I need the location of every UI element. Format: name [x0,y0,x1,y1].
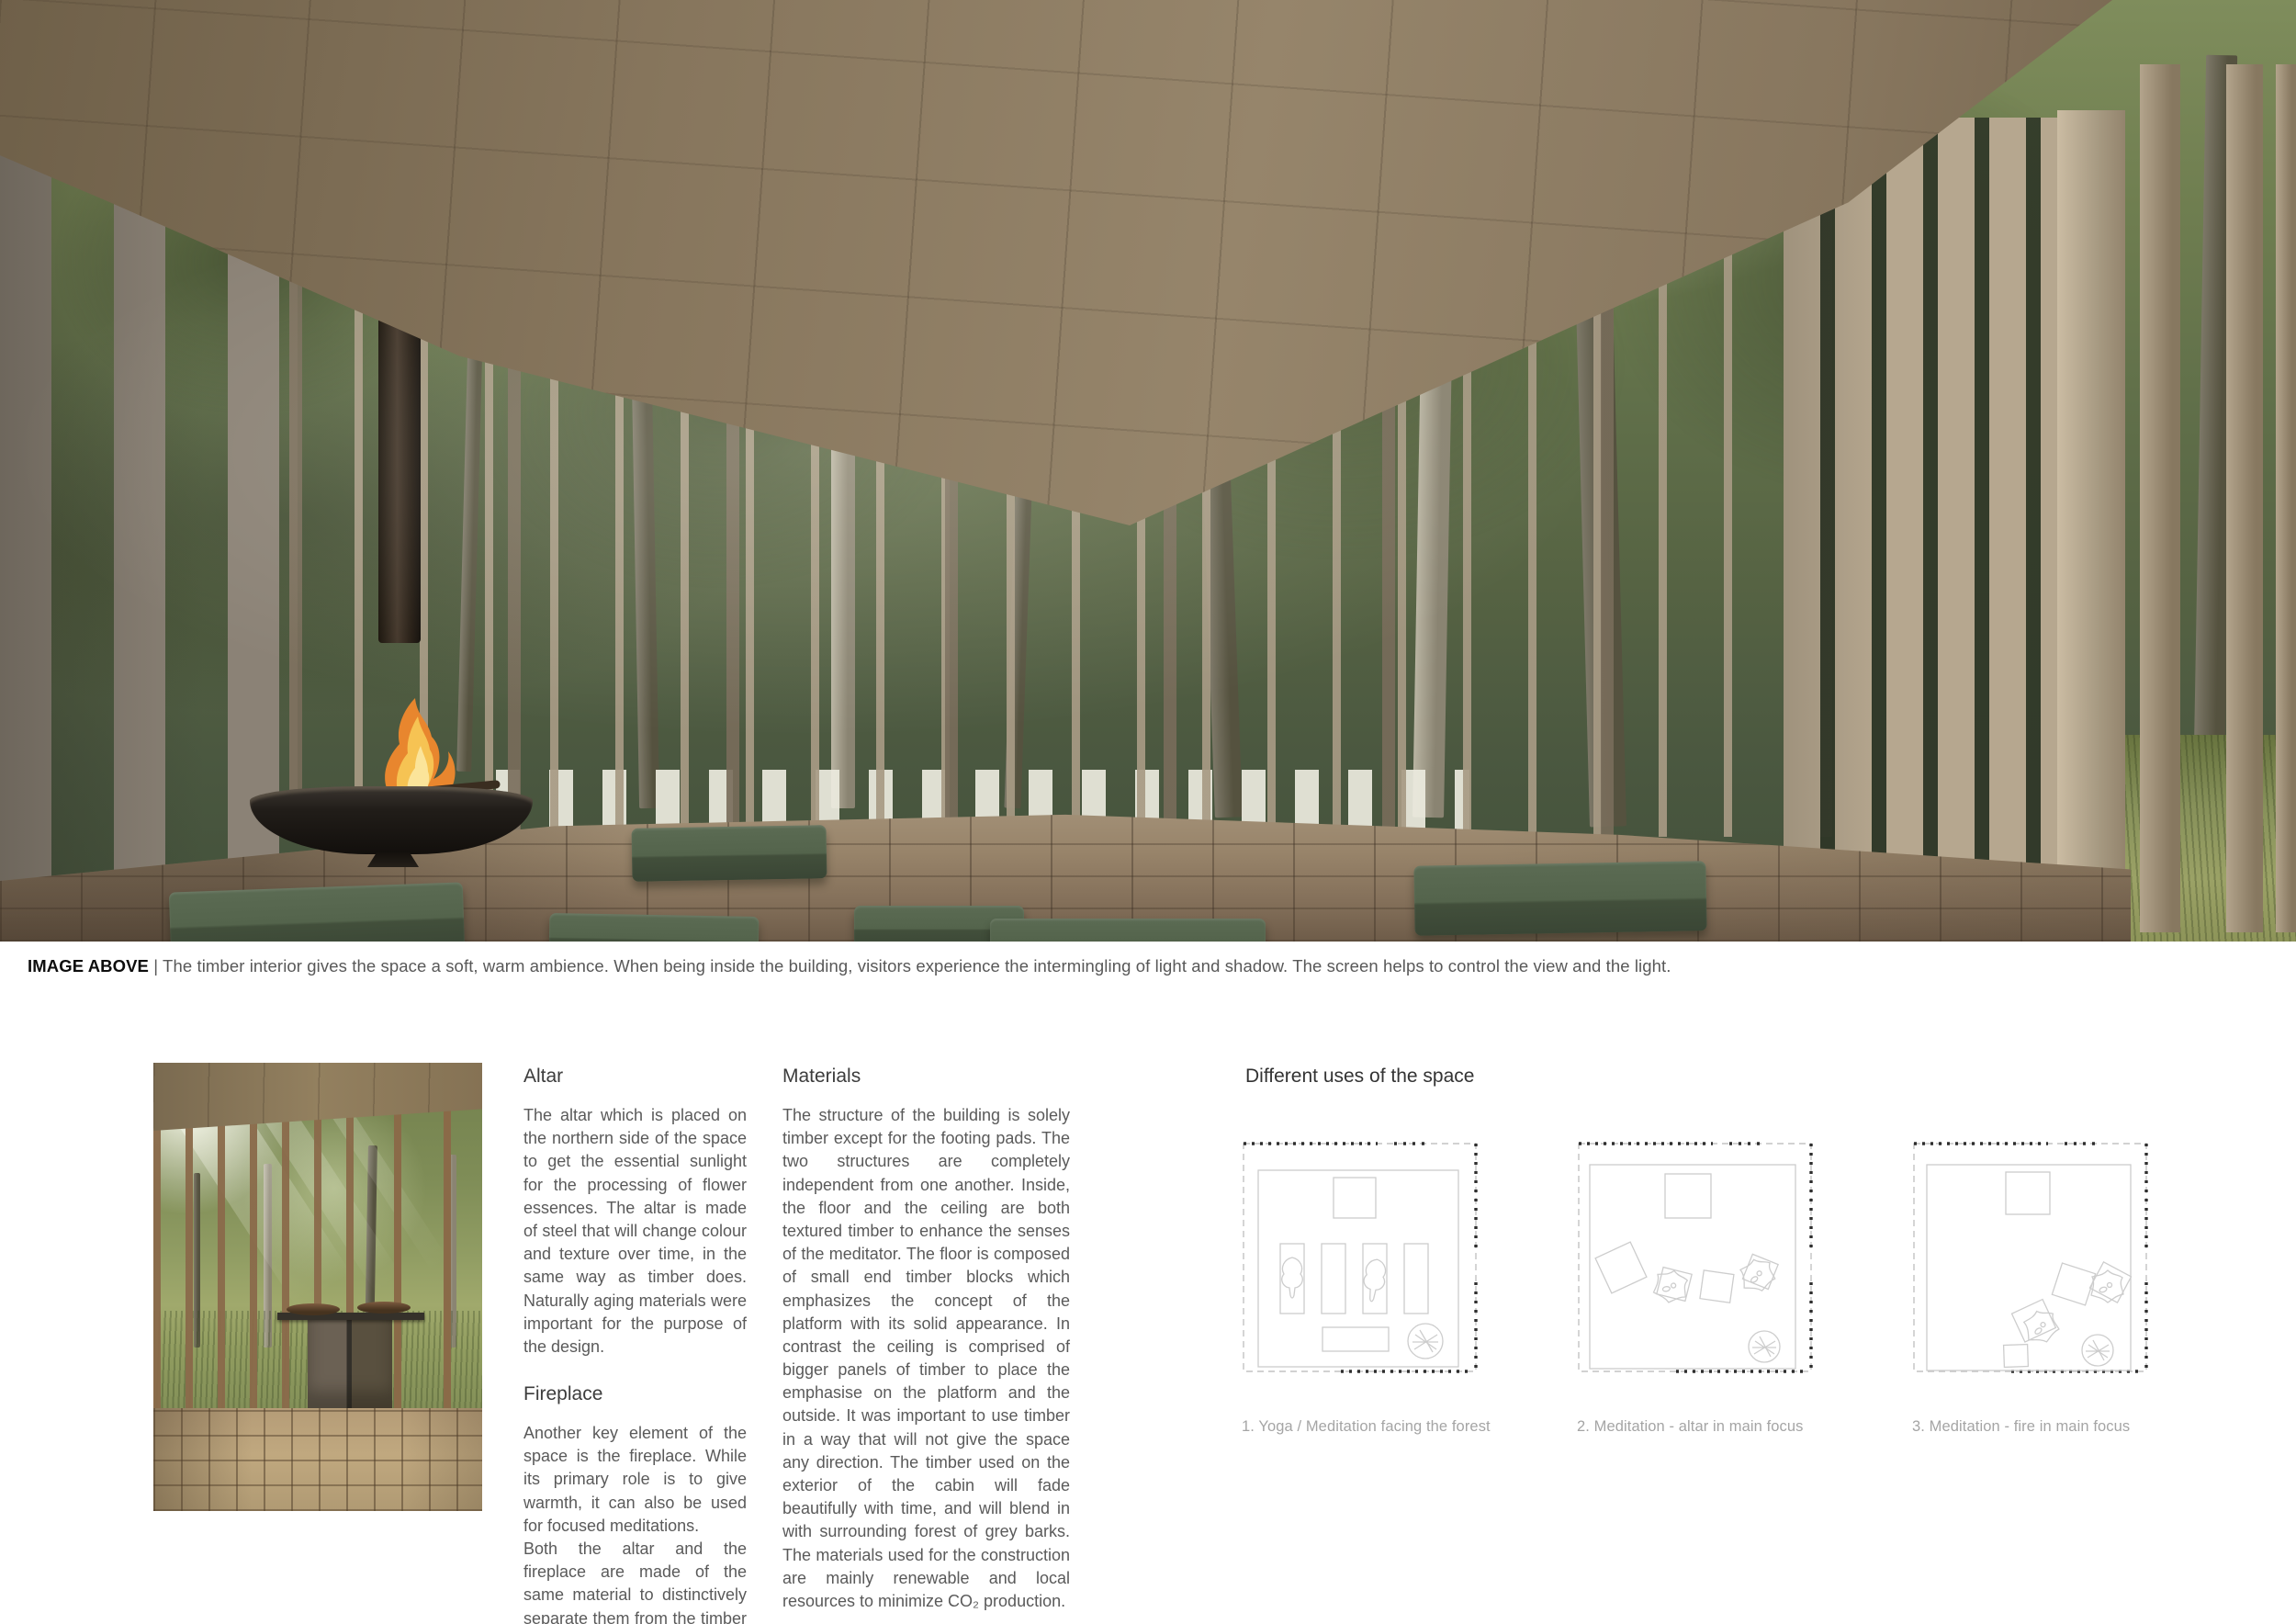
meditation-cushion [549,913,760,942]
diagram-caption-2: 2. Meditation - altar in main focus [1577,1418,1816,1436]
plan-diagram-1 [1242,1137,1480,1378]
meditation-cushion [990,919,1266,942]
materials-body: The structure of the building is solely … [782,1104,1070,1613]
hero-render-image [0,0,2296,942]
caption-label: IMAGE ABOVE [28,956,149,976]
fire-bowl-plan [1408,1324,1443,1359]
exterior-slat-post [2276,64,2296,932]
diagram-meditation-fire: 3. Meditation - fire in main focus [1912,1137,2151,1436]
altar-heading: Altar [523,1066,747,1088]
presentation-board: IMAGE ABOVE | The timber interior gives … [0,0,2296,1624]
inset-floor [153,1408,482,1511]
use-diagrams: 1. Yoga / Meditation facing the forest [1242,1137,2151,1436]
fireplace-body-1: Another key element of the space is the … [523,1422,747,1538]
altar-pedestal [308,1320,392,1408]
plan-diagram-3 [1912,1137,2151,1378]
materials-heading: Materials [782,1066,1070,1088]
inset-altar-image [153,1063,482,1511]
corner-post [2057,110,2125,926]
meditation-cushion [169,882,465,942]
fire-bowl-plan [1749,1331,1780,1362]
fireplace-heading: Fireplace [523,1383,747,1405]
uses-heading: Different uses of the space [1245,1066,1474,1088]
diagram-meditation-altar: 2. Meditation - altar in main focus [1577,1137,1816,1436]
altar-bowl [287,1303,340,1315]
plan-diagram-2 [1577,1137,1816,1378]
exterior-slat-post [2140,64,2180,932]
inset-timber-slat [444,1100,451,1416]
column-altar-fireplace: Altar The altar which is placed on the n… [523,1066,747,1624]
meditation-cushion [1413,861,1706,936]
diagram-yoga-facing-forest: 1. Yoga / Meditation facing the forest [1242,1137,1480,1436]
diagram-caption-3: 3. Meditation - fire in main focus [1912,1418,2151,1436]
exterior-slat-post [2226,64,2263,932]
altar-body: The altar which is placed on the norther… [523,1104,747,1359]
person-figure [1361,1258,1388,1303]
inset-timber-slat [394,1100,401,1416]
altar-bowl [357,1302,411,1314]
person-figure [1282,1257,1302,1298]
fireplace-body-2: Both the altar and the fireplace are mad… [523,1538,747,1624]
fire-bowl-plan [2082,1335,2113,1366]
column-materials: Materials The structure of the building … [782,1066,1070,1613]
image-caption: IMAGE ABOVE | The timber interior gives … [28,956,1671,976]
caption-text: | The timber interior gives the space a … [153,956,1671,976]
diagram-caption-1: 1. Yoga / Meditation facing the forest [1242,1418,1480,1436]
meditation-cushion [632,825,827,882]
